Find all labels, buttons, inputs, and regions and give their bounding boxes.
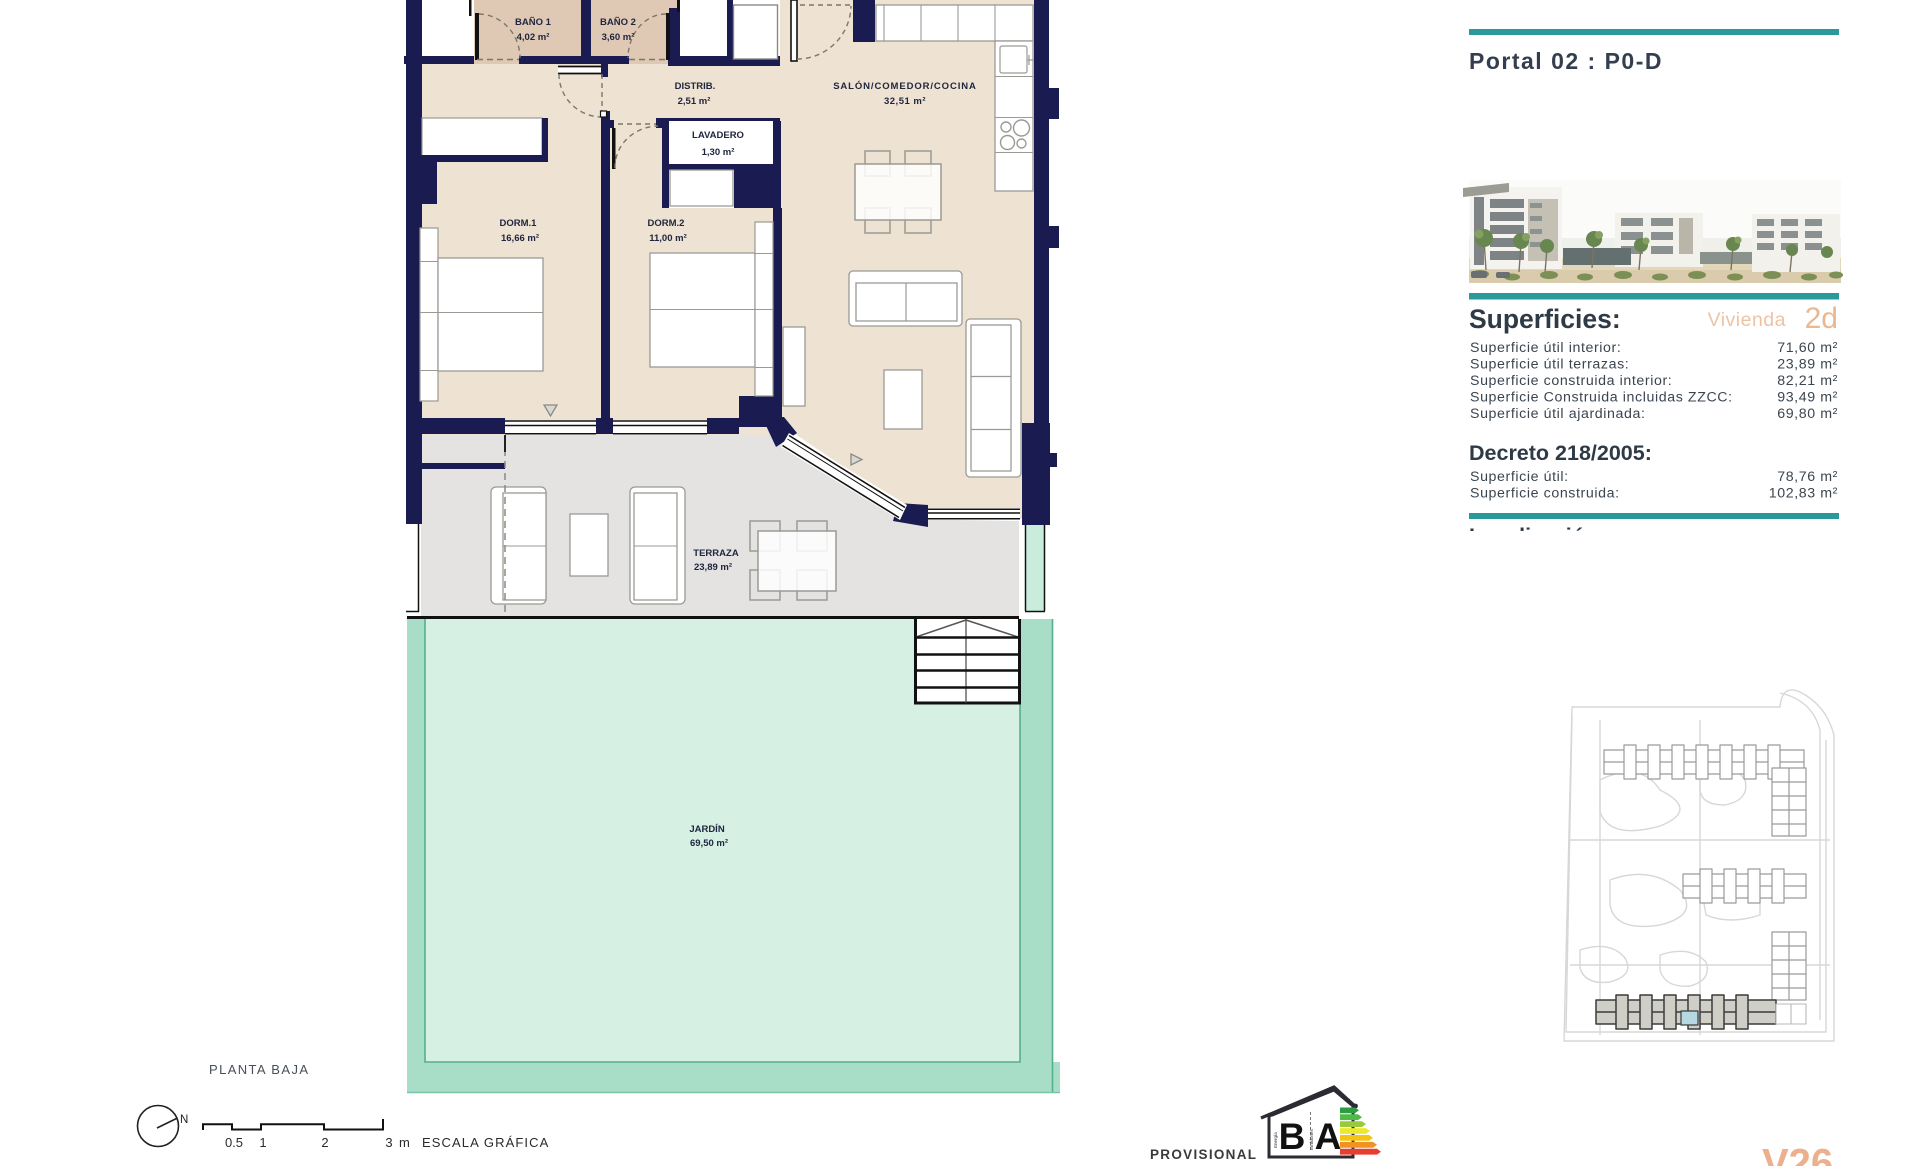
svg-text:3: 3 (385, 1135, 392, 1150)
svg-text:69,50 m²: 69,50 m² (690, 838, 728, 849)
svg-text:Superficies:: Superficies: (1469, 304, 1621, 334)
svg-text:Emisiones: Emisiones (1309, 1128, 1314, 1150)
svg-text:LAVADERO: LAVADERO (692, 130, 744, 141)
svg-text:PLANTA BAJA: PLANTA BAJA (209, 1062, 309, 1077)
svg-text:A: A (1315, 1116, 1342, 1157)
svg-text:1: 1 (259, 1135, 266, 1150)
svg-text:11,00 m²: 11,00 m² (649, 233, 687, 244)
svg-text:Superficie construida:: Superficie construida: (1470, 486, 1620, 502)
svg-text:Superficie útil:: Superficie útil: (1470, 469, 1569, 485)
svg-text:1,30 m²: 1,30 m² (702, 147, 735, 158)
svg-text:SALÓN/COMEDOR/COCINA: SALÓN/COMEDOR/COCINA (833, 80, 977, 92)
svg-text:ESCALA GRÁFICA: ESCALA GRÁFICA (422, 1135, 549, 1150)
svg-text:4,02 m²: 4,02 m² (517, 32, 550, 43)
svg-text:DISTRIB.: DISTRIB. (675, 81, 716, 92)
svg-text:Superficie Construida incluida: Superficie Construida incluidas ZZCC: (1470, 390, 1733, 406)
svg-text:DORM.1: DORM.1 (500, 218, 538, 229)
svg-text:32,51 m²: 32,51 m² (884, 96, 926, 107)
svg-text:71,60 m²: 71,60 m² (1777, 340, 1838, 356)
svg-text:78,76 m²: 78,76 m² (1777, 469, 1838, 485)
svg-text:23,89 m²: 23,89 m² (694, 562, 732, 573)
svg-text:2,51 m²: 2,51 m² (678, 96, 711, 107)
svg-text:Energía: Energía (1273, 1132, 1278, 1148)
svg-text:Superficie útil interior:: Superficie útil interior: (1470, 340, 1621, 356)
svg-text:Decreto 218/2005:: Decreto 218/2005: (1469, 441, 1652, 465)
svg-text:Superficie útil terrazas:: Superficie útil terrazas: (1470, 357, 1629, 373)
svg-text:3,60 m²: 3,60 m² (602, 32, 635, 43)
svg-text:JARDÍN: JARDÍN (689, 824, 725, 835)
svg-text:16,66 m²: 16,66 m² (501, 233, 539, 244)
svg-text:BAÑO 1: BAÑO 1 (515, 17, 552, 28)
svg-text:102,83 m²: 102,83 m² (1769, 486, 1838, 502)
svg-text:82,21 m²: 82,21 m² (1777, 373, 1838, 389)
svg-text:Portal 02 : P0-D: Portal 02 : P0-D (1469, 48, 1663, 74)
svg-text:69,80 m²: 69,80 m² (1777, 406, 1838, 422)
svg-text:93,49 m²: 93,49 m² (1777, 390, 1838, 406)
svg-text:2: 2 (321, 1135, 328, 1150)
svg-text:Superficie útil ajardinada:: Superficie útil ajardinada: (1470, 406, 1646, 422)
svg-text:TERRAZA: TERRAZA (693, 548, 739, 559)
svg-text:PROVISIONAL: PROVISIONAL (1150, 1147, 1257, 1162)
svg-text:BAÑO 2: BAÑO 2 (600, 17, 636, 28)
svg-text:Superficie construida interior: Superficie construida interior: (1470, 373, 1672, 389)
svg-text:2d: 2d (1805, 302, 1838, 335)
svg-text:DORM.2: DORM.2 (648, 218, 685, 229)
svg-text:0.5: 0.5 (225, 1135, 243, 1150)
svg-text:m: m (399, 1135, 410, 1150)
svg-text:V26: V26 (1762, 1142, 1833, 1167)
svg-text:Vivienda: Vivienda (1708, 309, 1786, 331)
svg-text:N: N (180, 1114, 188, 1126)
svg-text:B: B (1279, 1116, 1306, 1157)
svg-text:23,89 m²: 23,89 m² (1777, 357, 1838, 373)
